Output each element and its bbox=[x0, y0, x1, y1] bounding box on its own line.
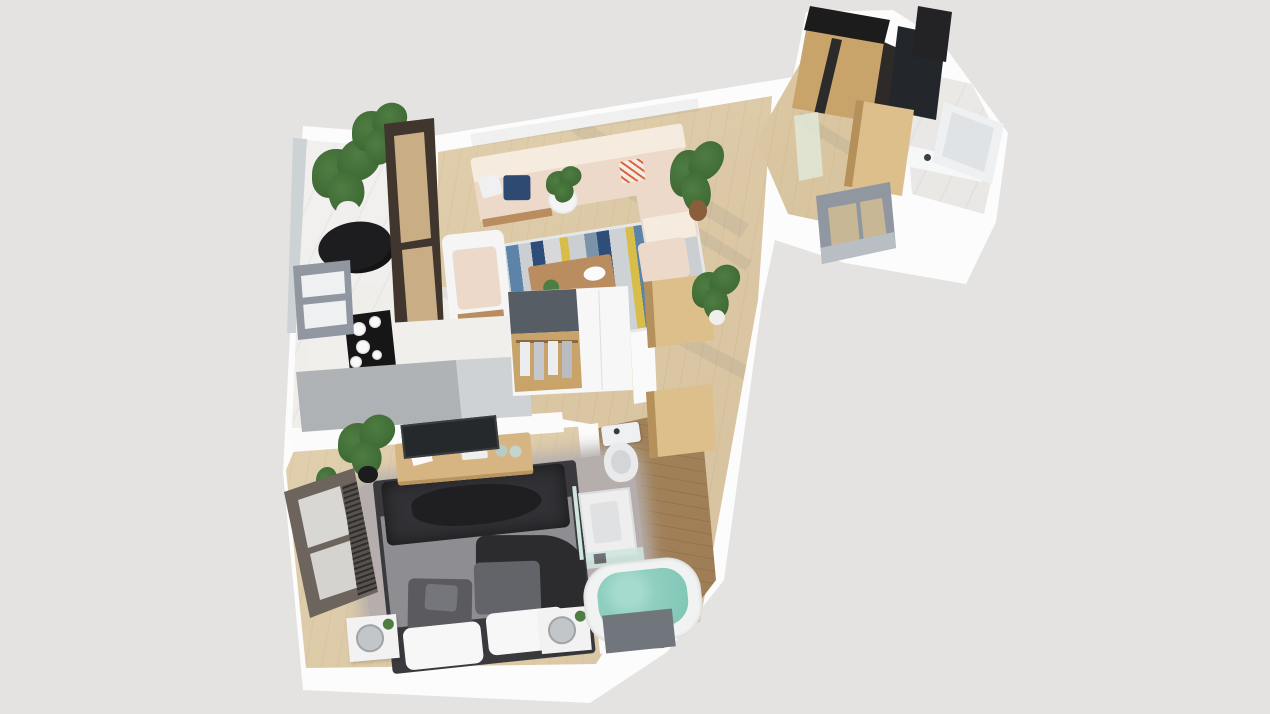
nightstand-left-plant bbox=[382, 618, 394, 630]
shelf-items bbox=[593, 553, 606, 564]
side-table-plant bbox=[546, 166, 584, 208]
hanging-garment-3 bbox=[548, 341, 558, 375]
dish-3 bbox=[356, 340, 370, 354]
toilet-seat bbox=[609, 449, 632, 476]
sofa-cushion-navy bbox=[503, 175, 530, 200]
hanging-garment-4 bbox=[562, 341, 572, 378]
living-ottoman bbox=[637, 236, 691, 283]
sofa-cushion-stripe bbox=[619, 158, 646, 184]
dish-2 bbox=[369, 316, 381, 328]
nightstand-left-mirror bbox=[355, 623, 385, 653]
nightstand-right bbox=[538, 606, 592, 654]
dish-4 bbox=[350, 356, 362, 368]
bed-pillow-accent bbox=[424, 584, 458, 612]
shower-drain-inset bbox=[589, 501, 622, 544]
bed-pillow-white-left bbox=[402, 621, 484, 671]
vanity-faucet-1 bbox=[924, 154, 931, 161]
dish-5 bbox=[372, 350, 382, 360]
nightstand-right-mirror bbox=[547, 615, 577, 645]
bathtub-side-panel bbox=[602, 608, 676, 653]
apartment-floor-plan-render bbox=[0, 0, 1270, 714]
dish-1 bbox=[352, 322, 366, 336]
living-armchair bbox=[441, 229, 512, 329]
nightstand-left bbox=[346, 614, 400, 662]
hallway-plant bbox=[692, 264, 742, 328]
hanging-garment-1 bbox=[520, 342, 530, 376]
bed-pillow-gray-right bbox=[474, 561, 542, 615]
plant-beside-sofa bbox=[670, 140, 726, 224]
coffee-table-plate bbox=[583, 265, 607, 282]
hanging-garment-2 bbox=[534, 342, 544, 380]
armchair-seat bbox=[452, 246, 502, 310]
